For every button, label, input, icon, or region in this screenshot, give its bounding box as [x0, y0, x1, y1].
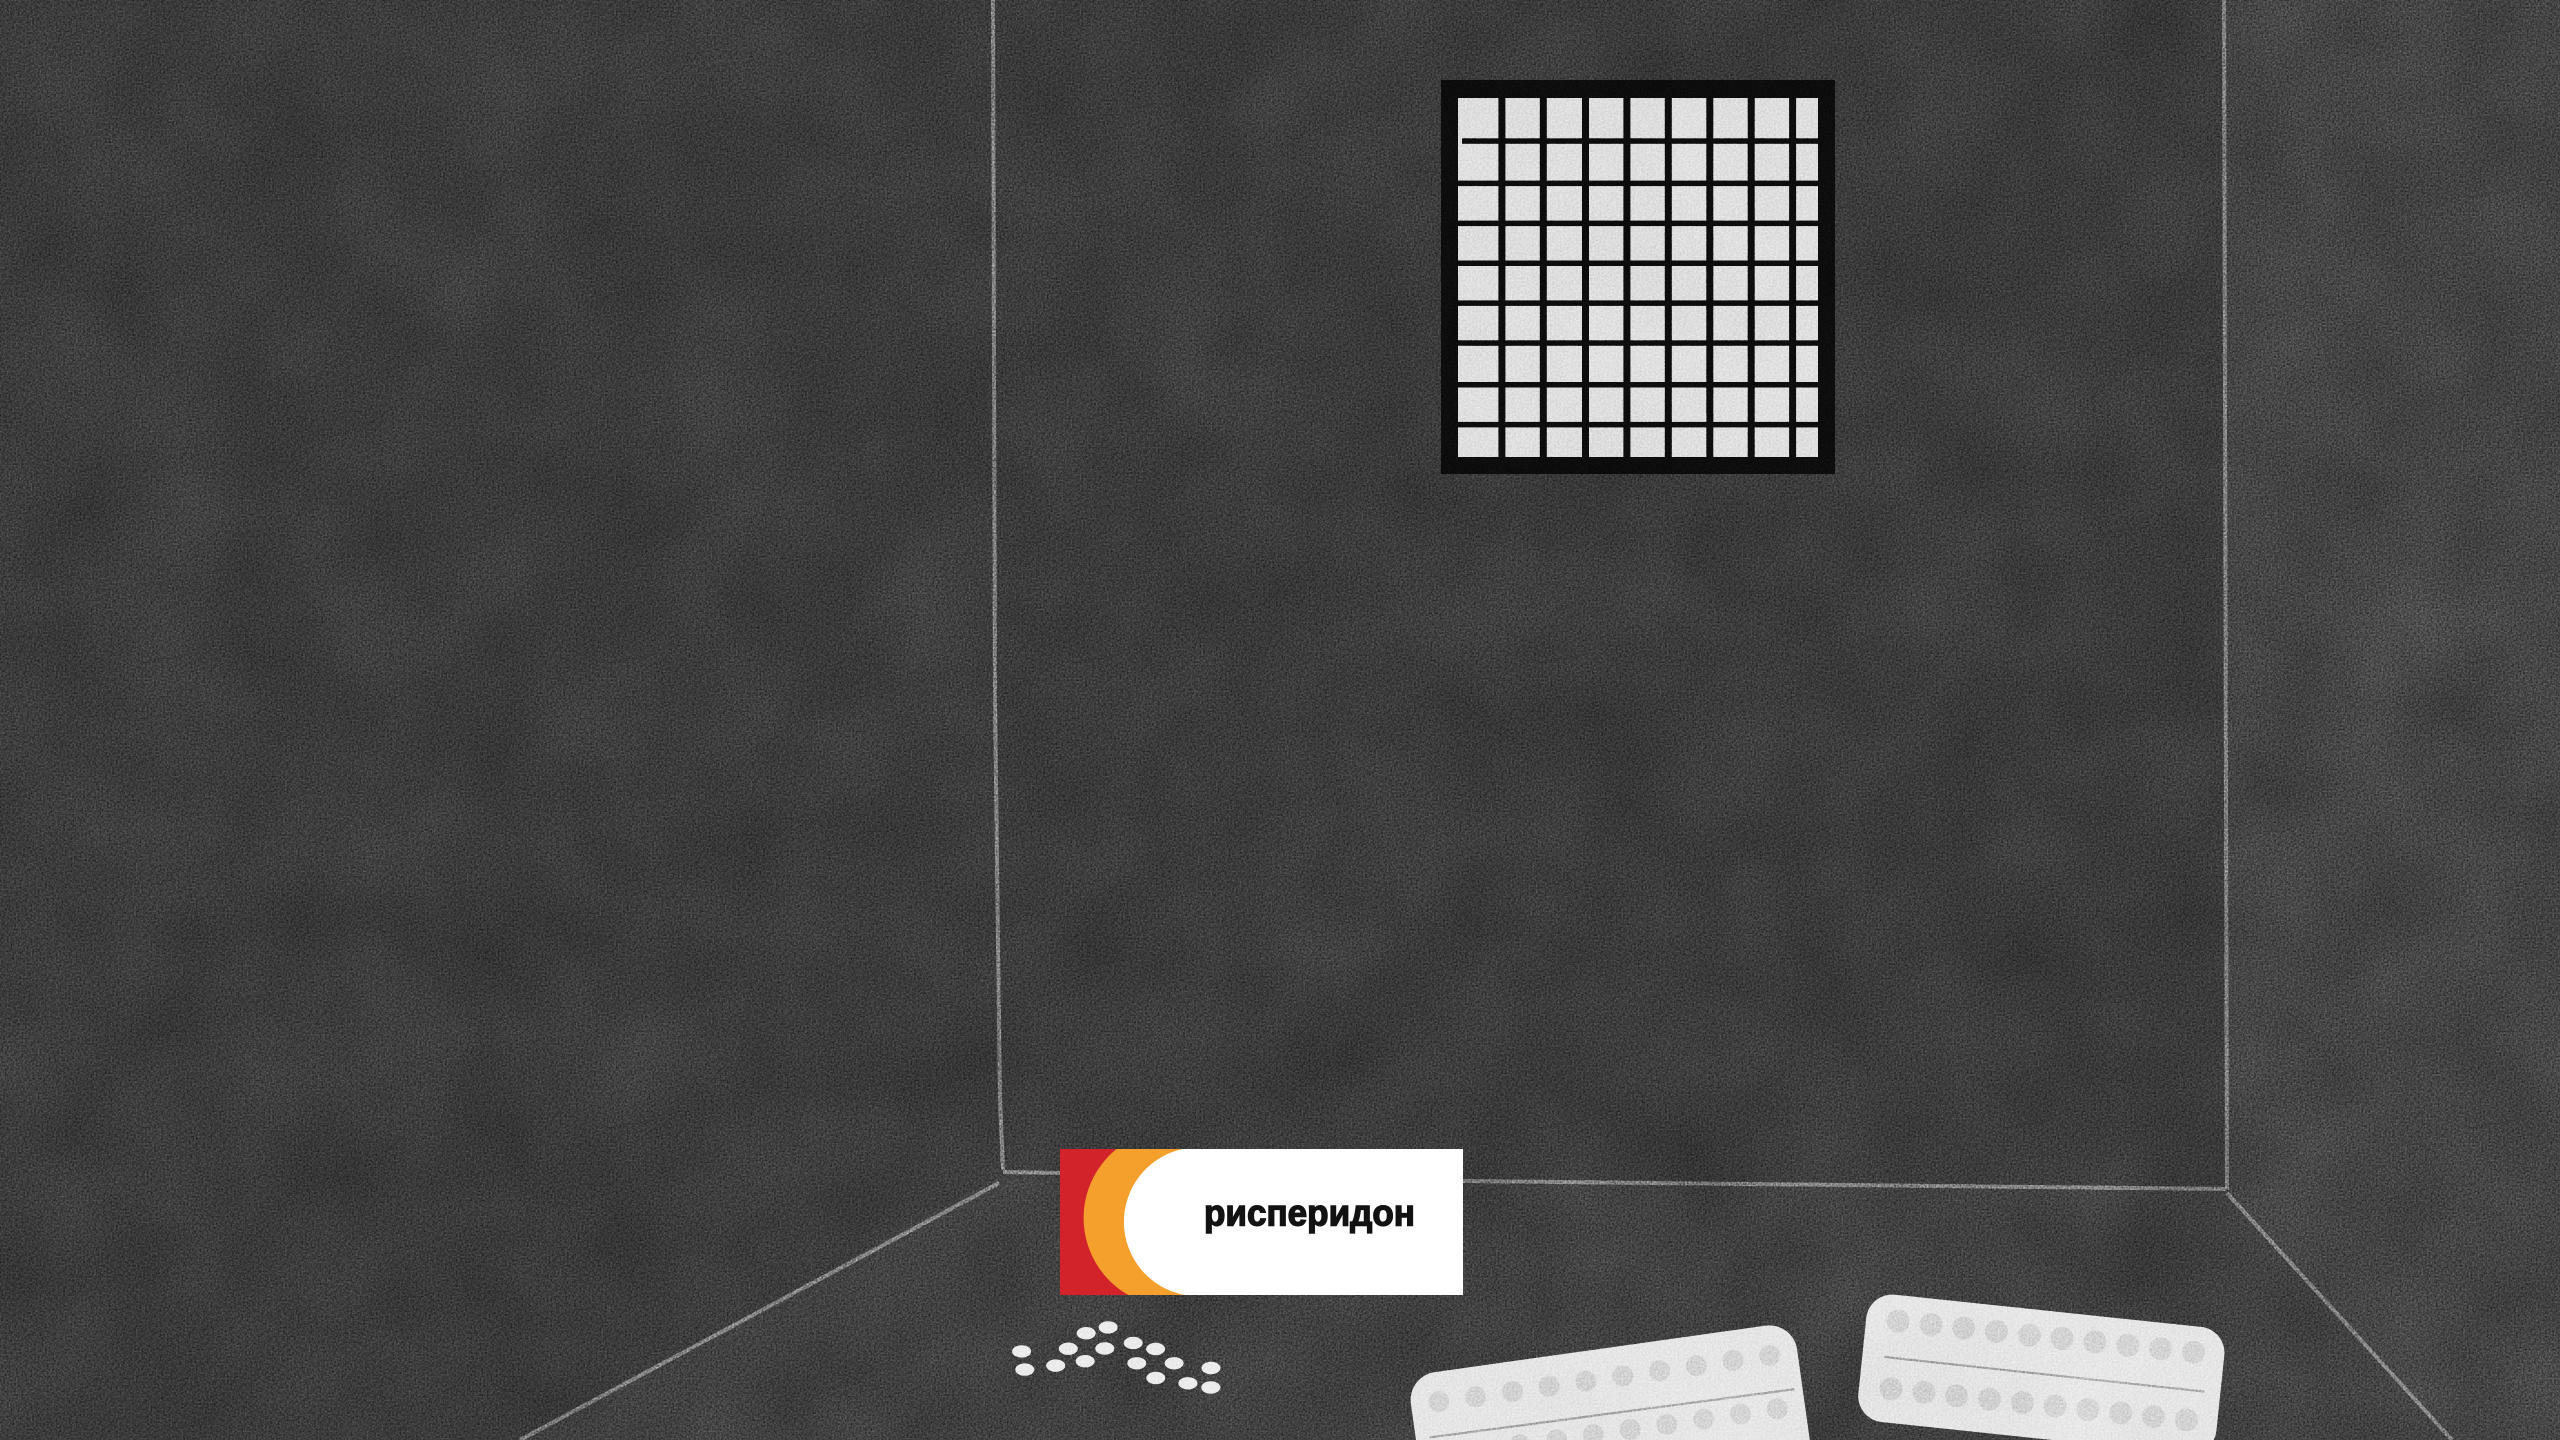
svg-text:рисперидон: рисперидон: [1204, 1192, 1415, 1234]
